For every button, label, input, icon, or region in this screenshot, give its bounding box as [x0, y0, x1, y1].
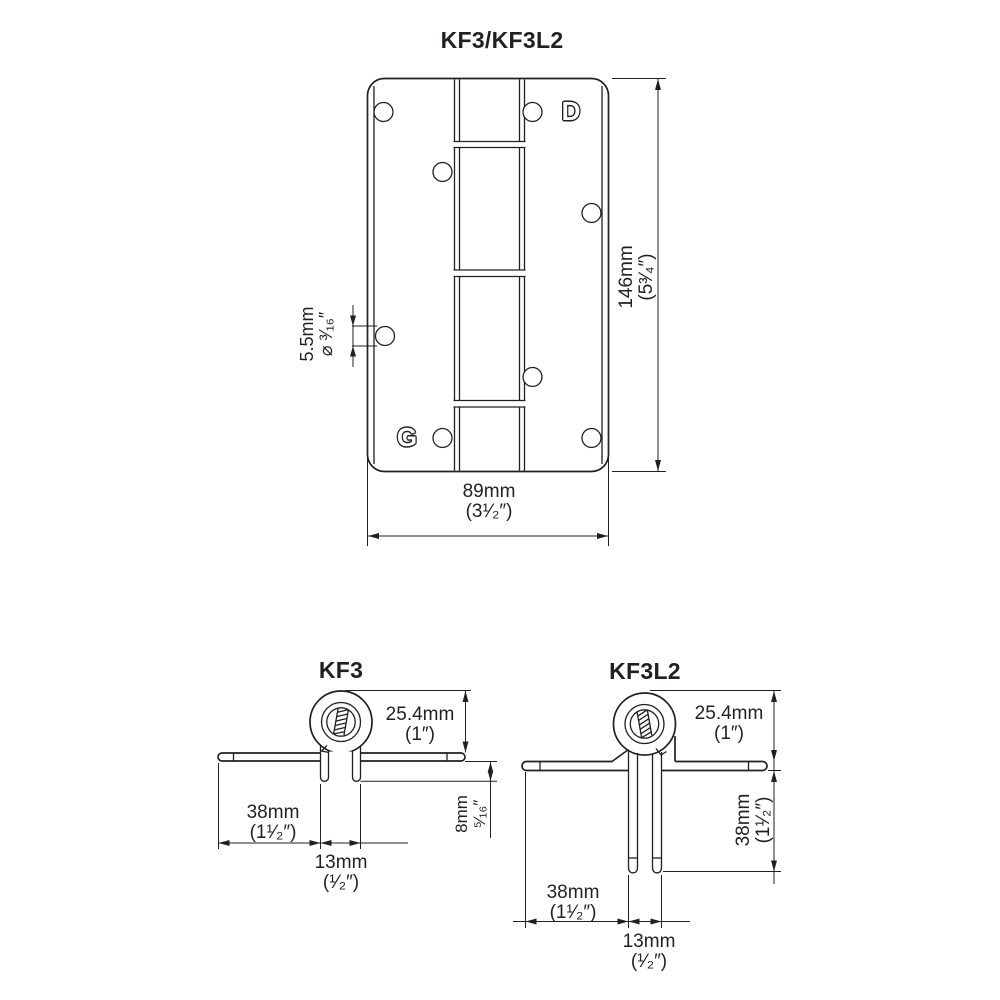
- kf3l2-knuckle-height-label: 25.4mm (1″): [695, 704, 764, 744]
- top-view-drawing: [350, 79, 666, 547]
- kf3-lug-depth-label: 8mm ⁵⁄₁₆″: [453, 795, 489, 833]
- kf3l2-pin-spacing-label: 13mm (¹⁄₂″): [623, 932, 676, 972]
- kf3l2-leaf-mm: 38mm: [547, 883, 600, 903]
- kf3-knuckle: [310, 691, 372, 753]
- kf3-lug-mm: 8mm: [453, 795, 471, 833]
- kf3-title: KF3: [319, 660, 363, 680]
- hinge-spec-sheet: KF3/KF3L2 D G 146mm (5³⁄₄″) 89mm (3¹⁄₂″)…: [0, 0, 1000, 1000]
- kf3-pin-spacing-label: 13mm (¹⁄₂″): [315, 853, 368, 893]
- plate-width-mm: 89mm: [463, 482, 516, 502]
- plate-height-in: (5³⁄₄″): [637, 245, 657, 308]
- kf3l2-knuckle: [614, 693, 676, 755]
- brand-logo-g: G: [397, 427, 417, 447]
- kf3-knuckle-height-label: 25.4mm (1″): [386, 705, 455, 745]
- plate-width-in: (3¹⁄₂″): [463, 502, 516, 522]
- kf3-leaf-mm: 38mm: [247, 803, 300, 823]
- hole-diameter-in: ⌀ ³⁄₁₆″: [317, 306, 336, 361]
- hole-diameter-label: 5.5mm ⌀ ³⁄₁₆″: [298, 306, 336, 361]
- kf3l2-leg-mm: 38mm: [734, 794, 754, 847]
- kf3-lug-in: ⁵⁄₁₆″: [471, 795, 489, 833]
- kf3-knuckle-mm: 25.4mm: [386, 705, 455, 725]
- top-view-title: KF3/KF3L2: [441, 30, 564, 50]
- kf3l2-leg-length-label: 38mm (1¹⁄₂″): [734, 794, 774, 847]
- plate-height-mm: 146mm: [617, 245, 637, 308]
- plate-height-label: 146mm (5³⁄₄″): [617, 245, 657, 308]
- kf3l2-knuckle-in: (1″): [695, 724, 764, 744]
- kf3l2-leaf-length-label: 38mm (1¹⁄₂″): [547, 883, 600, 923]
- kf3l2-knuckle-mm: 25.4mm: [695, 704, 764, 724]
- kf3l2-leg-in: (1¹⁄₂″): [754, 794, 774, 847]
- hole-diameter-mm: 5.5mm: [298, 306, 317, 361]
- kf3-leaf-length-label: 38mm (1¹⁄₂″): [247, 803, 300, 843]
- kf3l2-pins-mm: 13mm: [623, 932, 676, 952]
- kf3-leaf-in: (1¹⁄₂″): [247, 823, 300, 843]
- kf3-pins-mm: 13mm: [315, 853, 368, 873]
- kf3-pins-in: (¹⁄₂″): [315, 873, 368, 893]
- plate-width-label: 89mm (3¹⁄₂″): [463, 482, 516, 522]
- kf3-knuckle-in: (1″): [386, 725, 455, 745]
- brand-logo-d: D: [562, 101, 581, 121]
- kf3l2-title: KF3L2: [609, 661, 681, 681]
- kf3l2-leaf-in: (1¹⁄₂″): [547, 903, 600, 923]
- kf3l2-pins-in: (¹⁄₂″): [623, 952, 676, 972]
